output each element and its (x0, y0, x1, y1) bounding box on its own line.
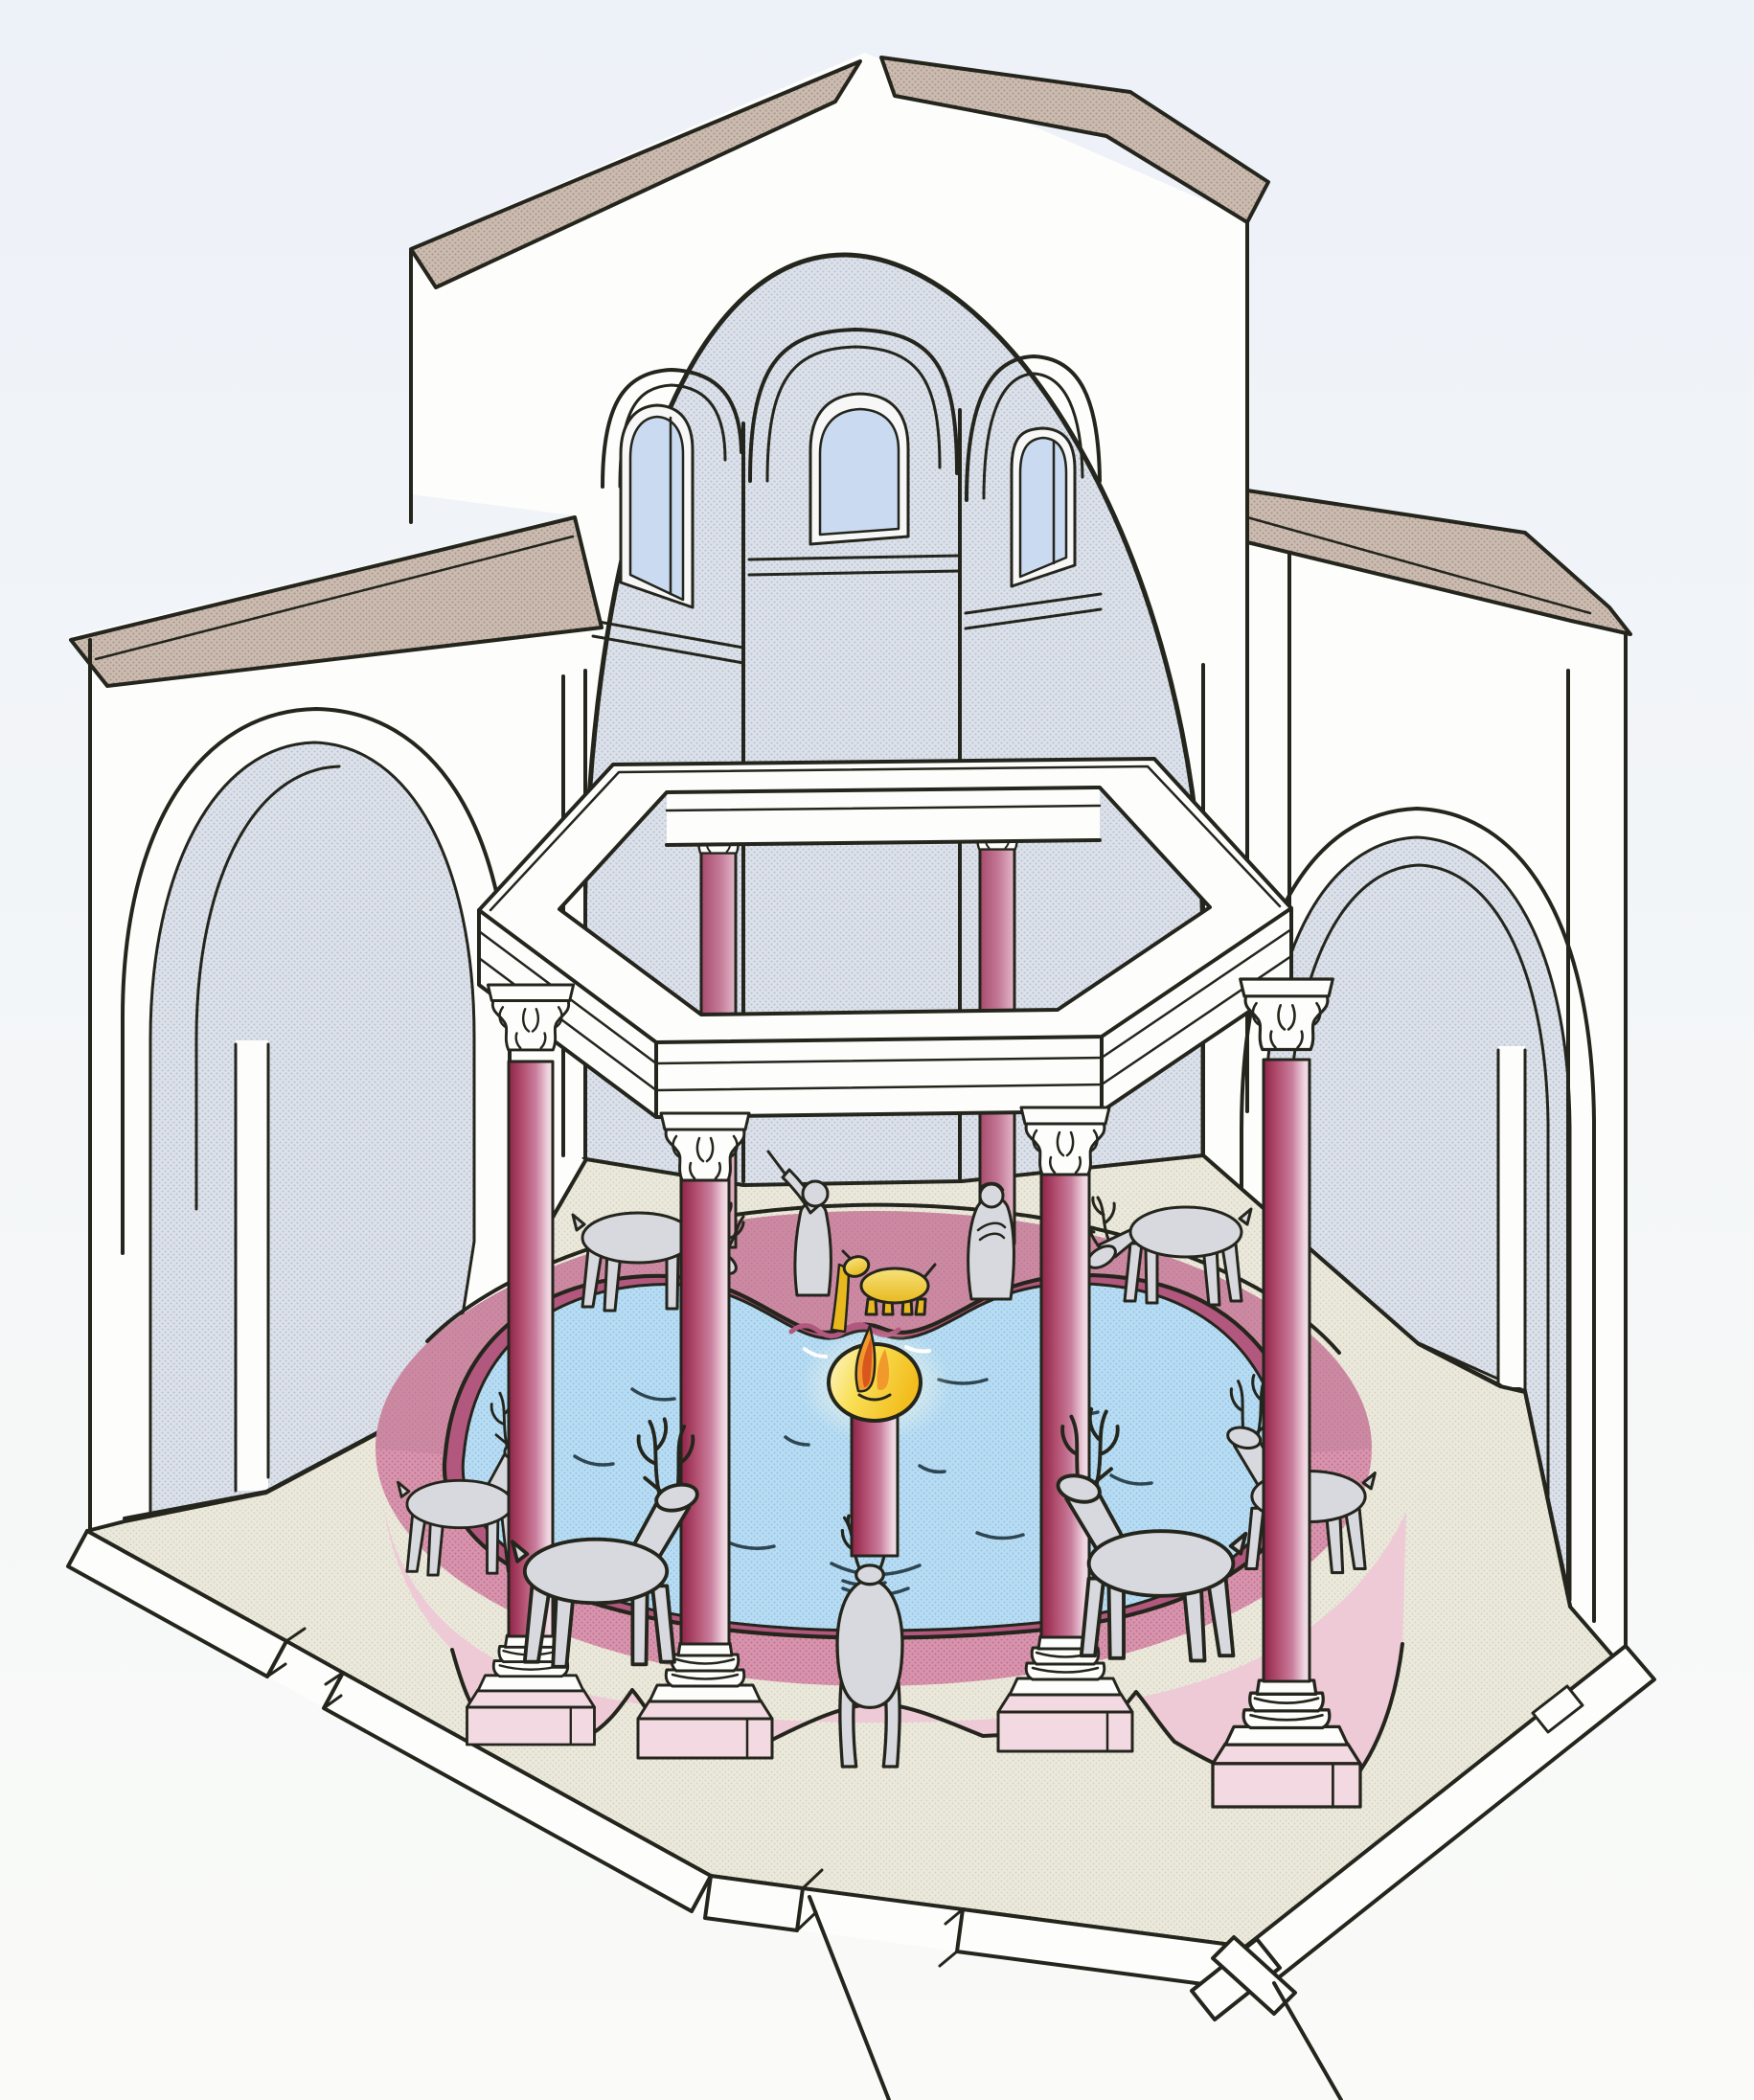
column-front-right (1041, 1173, 1089, 1637)
window-middle-glass (820, 409, 899, 535)
window-right-glass (1020, 438, 1066, 577)
illustration-canvas (0, 0, 1754, 2100)
baptistery-cutaway-illustration (0, 0, 1754, 2100)
window-left (621, 405, 693, 607)
right-niche-jamb-strip (1498, 1046, 1525, 1387)
ring-back-band (667, 787, 1100, 845)
left-niche-jamb-strip (236, 1040, 268, 1491)
window-right (1012, 428, 1075, 586)
lamp-column (852, 1416, 898, 1556)
column-east (1264, 1060, 1310, 1681)
column-front-left (681, 1178, 729, 1644)
window-left-glass (630, 417, 683, 600)
window-middle (810, 394, 908, 544)
